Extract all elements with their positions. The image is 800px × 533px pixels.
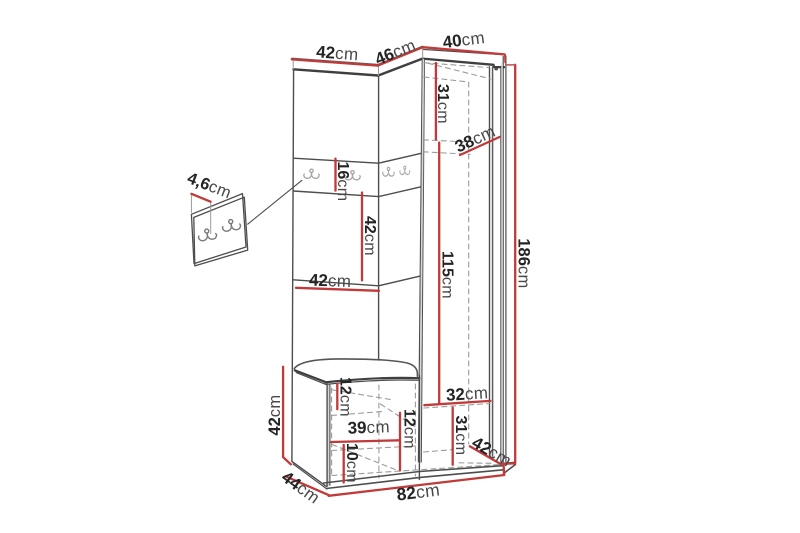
svg-text:44cm: 44cm bbox=[278, 467, 323, 507]
svg-text:31cm: 31cm bbox=[452, 416, 469, 456]
svg-text:40cm: 40cm bbox=[442, 28, 486, 52]
svg-text:12cm: 12cm bbox=[401, 409, 418, 449]
svg-text:32cm: 32cm bbox=[445, 383, 488, 405]
svg-text:186cm: 186cm bbox=[514, 238, 532, 288]
svg-text:42cm: 42cm bbox=[309, 271, 352, 291]
svg-text:42cm: 42cm bbox=[316, 42, 360, 64]
svg-text:42cm: 42cm bbox=[266, 394, 284, 435]
svg-text:42cm: 42cm bbox=[361, 216, 378, 256]
svg-text:115cm: 115cm bbox=[439, 251, 456, 299]
svg-text:10cm: 10cm bbox=[343, 443, 360, 483]
svg-text:12cm: 12cm bbox=[337, 377, 354, 417]
svg-text:31cm: 31cm bbox=[434, 84, 451, 124]
svg-text:16cm: 16cm bbox=[334, 162, 351, 202]
svg-text:39cm: 39cm bbox=[347, 417, 390, 437]
svg-text:82cm: 82cm bbox=[395, 479, 441, 504]
svg-text:4,6cm: 4,6cm bbox=[185, 169, 234, 202]
